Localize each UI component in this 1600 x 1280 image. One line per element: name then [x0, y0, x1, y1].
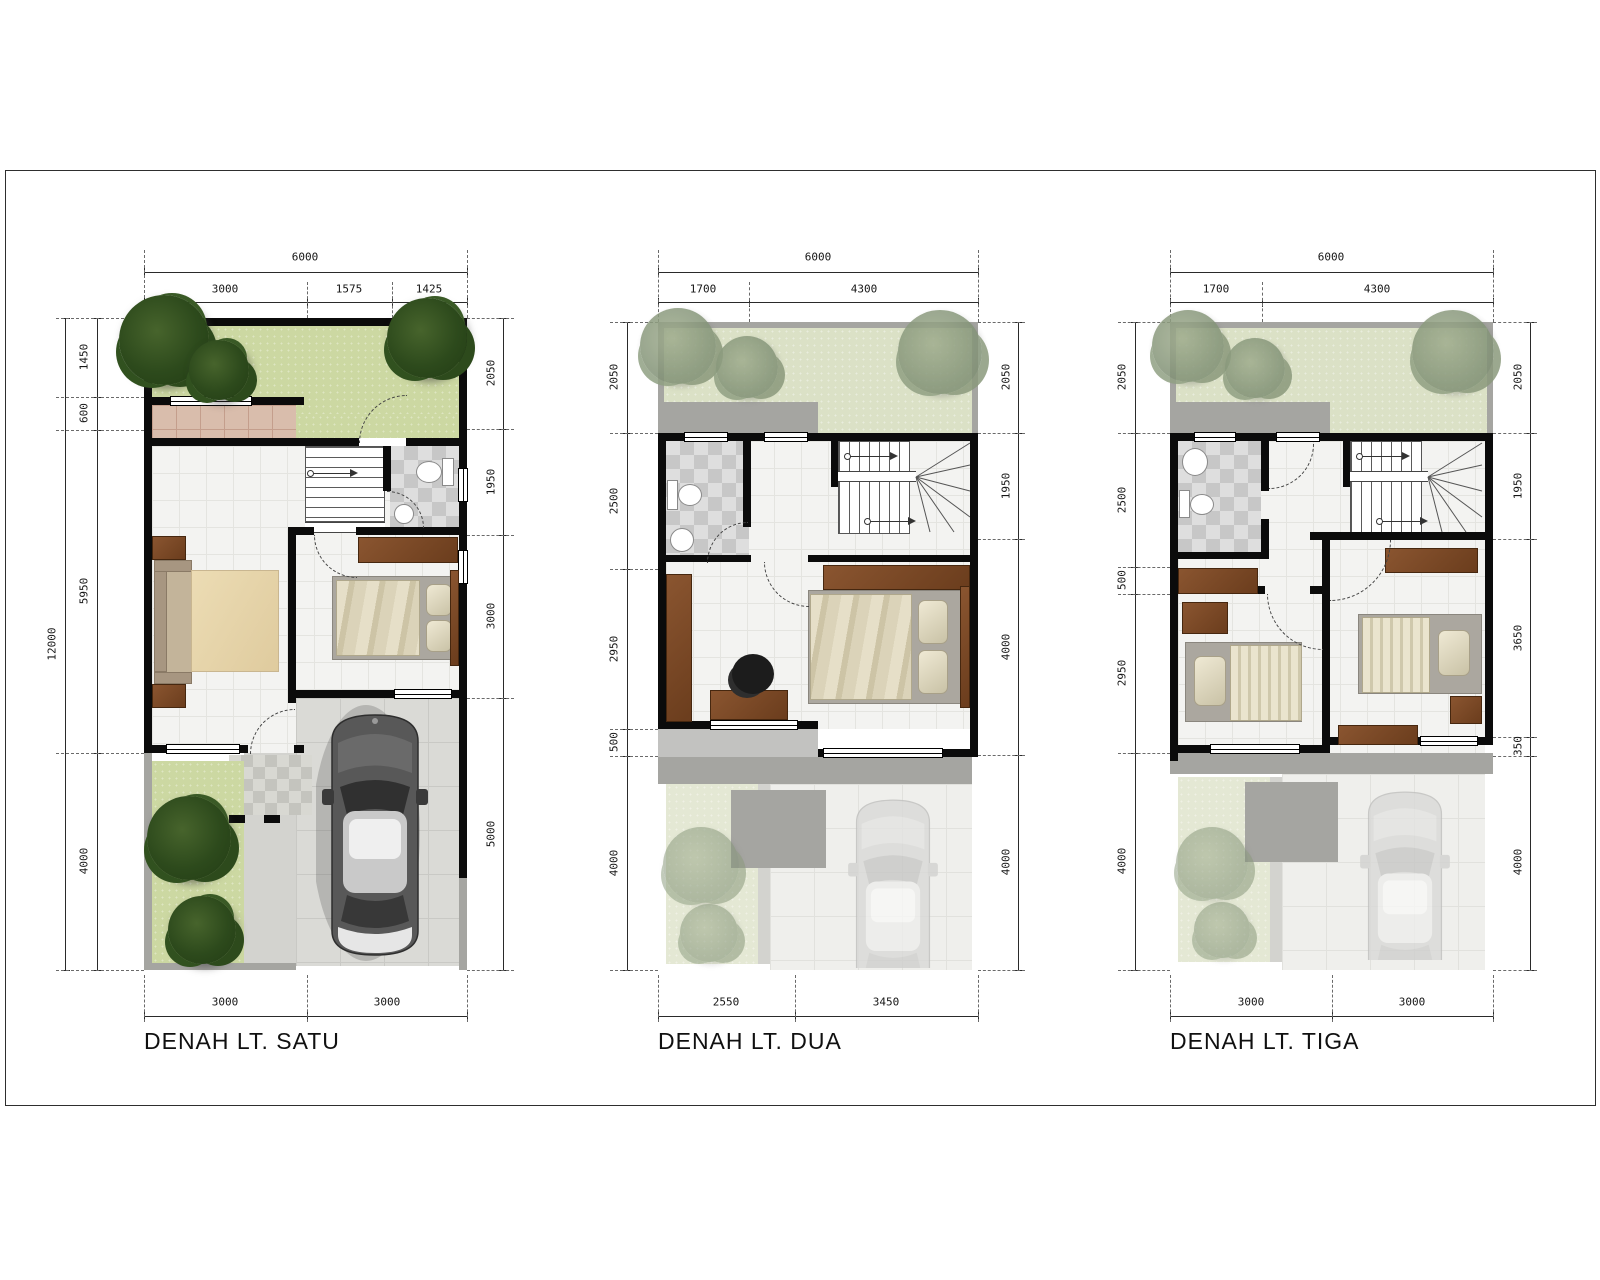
- dim-line: [1018, 322, 1019, 970]
- wall: [406, 438, 467, 446]
- extension-line: [978, 322, 1025, 323]
- wall: [1261, 441, 1269, 491]
- pillow: [426, 584, 452, 616]
- stair-arrow-head: [908, 517, 916, 525]
- extension-line: [1118, 567, 1170, 568]
- window: [458, 550, 468, 584]
- dim-label: 1700: [1203, 284, 1230, 295]
- tree: [898, 310, 982, 394]
- extension-line: [467, 318, 514, 319]
- dim-label: 3000: [486, 603, 497, 630]
- corridor-cabinet: [1178, 568, 1258, 594]
- wall: [831, 441, 838, 487]
- extension-line: [749, 282, 750, 322]
- extension-line: [1493, 250, 1494, 322]
- sofa-armrest: [154, 560, 192, 572]
- dim-line: [144, 1016, 467, 1017]
- extension-line: [1262, 282, 1263, 322]
- dim-label: 3000: [1399, 997, 1426, 1008]
- dim-label: 1950: [1001, 473, 1012, 500]
- roof-slab: [1176, 402, 1330, 433]
- dim-label: 6000: [1318, 252, 1345, 263]
- bed-blanket: [810, 594, 912, 700]
- extension-line: [1493, 322, 1537, 323]
- extension-line: [610, 729, 658, 730]
- window: [1420, 736, 1478, 746]
- plan-title-tiga: DENAH LT. TIGA: [1170, 1028, 1360, 1055]
- extension-line: [467, 975, 468, 1022]
- dim-label: 350: [1513, 736, 1524, 756]
- dim-label: 2050: [1117, 364, 1128, 391]
- extension-line: [978, 433, 1025, 434]
- window: [394, 689, 452, 699]
- extension-line: [1170, 250, 1171, 322]
- toilet-tank: [667, 480, 678, 510]
- extension-line: [978, 250, 979, 322]
- ghost-tree: [1194, 902, 1250, 958]
- dim-line: [65, 318, 66, 970]
- extension-line: [1118, 594, 1170, 595]
- dim-line: [1135, 322, 1136, 970]
- headboard: [450, 570, 459, 666]
- dim-label: 1950: [486, 469, 497, 496]
- side-table: [152, 536, 186, 560]
- dim-label: 2500: [1117, 487, 1128, 514]
- desk-chair: [732, 654, 774, 694]
- bed-blanket: [336, 580, 420, 656]
- dim-label: 1425: [416, 284, 443, 295]
- dim-line: [503, 318, 504, 970]
- extension-line: [1118, 433, 1170, 434]
- extension-line: [610, 756, 658, 757]
- dim-label: 1950: [1513, 473, 1524, 500]
- window: [1276, 432, 1320, 442]
- extension-line: [56, 970, 144, 971]
- ledge: [1170, 753, 1493, 774]
- ledge: [658, 757, 972, 784]
- dim-line: [627, 322, 628, 970]
- stair-arrow-line: [1382, 521, 1420, 522]
- bed-blanket: [1362, 617, 1430, 693]
- ghost-tree: [1176, 827, 1248, 899]
- wall: [743, 441, 751, 527]
- dim-label: 1700: [690, 284, 717, 295]
- sofa-seat: [167, 568, 191, 672]
- desk-cabinet: [666, 574, 692, 722]
- desk: [1182, 602, 1228, 634]
- dim-label: 5950: [79, 578, 90, 605]
- extension-line: [56, 753, 144, 754]
- plan-title-satu: DENAH LT. SATU: [144, 1028, 340, 1055]
- roof-slab: [664, 402, 818, 433]
- pillow: [918, 650, 948, 694]
- extension-line: [467, 535, 514, 536]
- dim-line: [97, 318, 98, 970]
- extension-line: [467, 250, 468, 318]
- tree: [716, 336, 778, 398]
- dim-label: 500: [1117, 570, 1128, 590]
- extension-line: [1118, 970, 1170, 971]
- dim-label: 2500: [609, 488, 620, 515]
- side-table: [1450, 696, 1482, 724]
- extension-line: [1493, 539, 1537, 540]
- dim-label: 2050: [486, 360, 497, 387]
- porch-roof: [1245, 782, 1338, 862]
- architectural-drawing-sheet: 6000 3000 1575 1425 12000 1450 600 5950 …: [0, 0, 1600, 1280]
- dim-label: 3450: [873, 997, 900, 1008]
- extension-line: [610, 970, 658, 971]
- bed-blanket: [1230, 645, 1302, 721]
- porch-roof: [731, 790, 826, 868]
- terrace-floor: [152, 405, 296, 438]
- wall: [970, 441, 978, 757]
- extension-line: [307, 975, 308, 1022]
- extension-line: [1493, 975, 1494, 1022]
- wall: [356, 527, 467, 535]
- wall: [288, 527, 296, 703]
- wall: [1322, 540, 1330, 753]
- dim-line: [658, 272, 978, 273]
- wall: [1343, 441, 1350, 487]
- sink: [1182, 448, 1208, 476]
- dim-label: 500: [609, 732, 620, 752]
- window: [823, 748, 943, 758]
- dim-label: 3000: [212, 284, 239, 295]
- stair-arrow-line: [870, 521, 908, 522]
- stair-arrow-head: [1420, 517, 1428, 525]
- plan-title-dua: DENAH LT. DUA: [658, 1028, 842, 1055]
- dim-label: 3000: [374, 997, 401, 1008]
- toilet-tank: [1179, 490, 1190, 518]
- extension-line: [307, 282, 308, 318]
- floor-plan-satu-building: [144, 318, 467, 970]
- tree: [147, 796, 231, 880]
- dim-label: 2550: [713, 997, 740, 1008]
- ghost-tree: [680, 904, 738, 962]
- dim-label: 4000: [1513, 849, 1524, 876]
- dim-label: 1450: [79, 344, 90, 371]
- car: [316, 703, 434, 966]
- extension-line: [610, 569, 658, 570]
- dim-label: 12000: [47, 627, 58, 660]
- window: [1210, 744, 1300, 754]
- extension-line: [467, 970, 514, 971]
- wall: [264, 815, 280, 823]
- dim-label: 3650: [1513, 625, 1524, 652]
- stair-rail: [838, 471, 916, 482]
- sofa-armrest: [154, 672, 192, 684]
- tree: [1225, 338, 1285, 398]
- wall: [144, 438, 304, 446]
- tree: [387, 298, 467, 378]
- dim-label: 600: [79, 403, 90, 423]
- tree: [1152, 310, 1224, 382]
- wall: [1170, 552, 1269, 559]
- stair-arrow-head: [890, 452, 898, 460]
- window: [166, 744, 240, 754]
- toilet-bowl: [416, 461, 442, 483]
- desk: [1385, 548, 1478, 573]
- dim-label: 3000: [1238, 997, 1265, 1008]
- plot-edge: [459, 878, 467, 970]
- stair-arrow-line: [314, 473, 350, 474]
- wall: [304, 438, 359, 446]
- window: [684, 432, 728, 442]
- stair-winders: [1420, 441, 1485, 534]
- dim-label: 2050: [609, 364, 620, 391]
- dim-label: 4300: [851, 284, 878, 295]
- sink: [670, 528, 694, 552]
- extension-line: [978, 970, 1025, 971]
- wall: [459, 318, 467, 878]
- dim-label: 4000: [1117, 848, 1128, 875]
- extension-line: [1493, 756, 1537, 757]
- extension-line: [1493, 970, 1537, 971]
- rug: [191, 570, 279, 672]
- extension-line: [978, 975, 979, 1022]
- dim-line: [1170, 272, 1493, 273]
- dim-label: 5000: [486, 821, 497, 848]
- extension-line: [610, 433, 658, 434]
- dim-label: 2950: [1117, 660, 1128, 687]
- dim-label: 4300: [1364, 284, 1391, 295]
- side-table: [152, 684, 186, 708]
- dim-label: 4000: [79, 848, 90, 875]
- floor-plan-tiga-building: [1170, 322, 1493, 970]
- dim-line: [1530, 322, 1531, 970]
- stair-rail: [1350, 471, 1428, 482]
- window: [1194, 432, 1236, 442]
- extension-line: [978, 539, 1025, 540]
- dim-line: [658, 1016, 978, 1017]
- pillow: [1194, 656, 1226, 706]
- dim-line: [144, 272, 467, 273]
- wall: [294, 745, 304, 753]
- ghost-car: [1355, 782, 1455, 960]
- dim-label: 4000: [1001, 849, 1012, 876]
- dim-label: 2050: [1513, 364, 1524, 391]
- extension-line: [978, 755, 1025, 756]
- window: [458, 468, 468, 502]
- tree: [189, 340, 249, 400]
- extension-line: [1493, 433, 1537, 434]
- toilet-tank: [442, 458, 454, 486]
- wall: [1261, 519, 1269, 552]
- extension-line: [467, 698, 514, 699]
- wall: [658, 441, 666, 729]
- window: [710, 720, 798, 730]
- dim-label: 6000: [805, 252, 832, 263]
- wardrobe: [358, 537, 458, 563]
- headboard: [960, 586, 970, 708]
- extension-line: [1118, 753, 1170, 754]
- stair-arrow-line: [1362, 456, 1402, 457]
- dim-label: 2950: [609, 636, 620, 663]
- tree: [1412, 310, 1494, 392]
- extension-line: [795, 975, 796, 1022]
- plot-edge: [144, 963, 296, 970]
- low-cabinet: [1338, 725, 1418, 745]
- wall: [808, 555, 970, 562]
- dim-line: [1170, 302, 1493, 303]
- staircase: [305, 446, 385, 522]
- dim-line: [658, 302, 978, 303]
- extension-line: [1332, 975, 1333, 1022]
- desk: [710, 690, 788, 720]
- ghost-car: [843, 790, 943, 968]
- wall: [1310, 532, 1485, 540]
- wall: [1170, 441, 1178, 761]
- toilet-bowl: [678, 484, 702, 506]
- wall: [1485, 441, 1493, 745]
- extension-line: [658, 250, 659, 322]
- pillow: [918, 600, 948, 644]
- stair-arrow-start: [307, 470, 314, 477]
- pillow: [426, 620, 452, 652]
- stair-arrow-line: [850, 456, 890, 457]
- extension-line: [392, 282, 393, 318]
- extension-line: [467, 429, 514, 430]
- stair-arrow-head: [1402, 452, 1410, 460]
- wall: [383, 446, 391, 491]
- extension-line: [144, 975, 145, 1022]
- stair-winders: [908, 441, 973, 534]
- extension-line: [56, 397, 144, 398]
- dim-label: 6000: [292, 252, 319, 263]
- wall: [229, 815, 245, 823]
- tree: [640, 308, 716, 384]
- extension-line: [1170, 975, 1171, 1022]
- dim-label: 3000: [212, 997, 239, 1008]
- dim-label: 4000: [609, 850, 620, 877]
- tree: [168, 896, 236, 964]
- dim-label: 1575: [336, 284, 363, 295]
- toilet-bowl: [1190, 494, 1214, 515]
- extension-line: [56, 430, 144, 431]
- stair-arrow-head: [350, 469, 358, 477]
- floor-plan-dua-building: [658, 322, 978, 970]
- dim-label: 2050: [1001, 364, 1012, 391]
- ghost-tree: [663, 827, 739, 903]
- wall: [1310, 586, 1322, 594]
- dim-label: 4000: [1001, 634, 1012, 661]
- extension-line: [658, 975, 659, 1022]
- window: [764, 432, 808, 442]
- plot-edge: [144, 753, 152, 970]
- pillow: [1438, 630, 1470, 676]
- sofa-back: [154, 568, 167, 672]
- wardrobe: [823, 565, 970, 590]
- ledge: [658, 729, 818, 757]
